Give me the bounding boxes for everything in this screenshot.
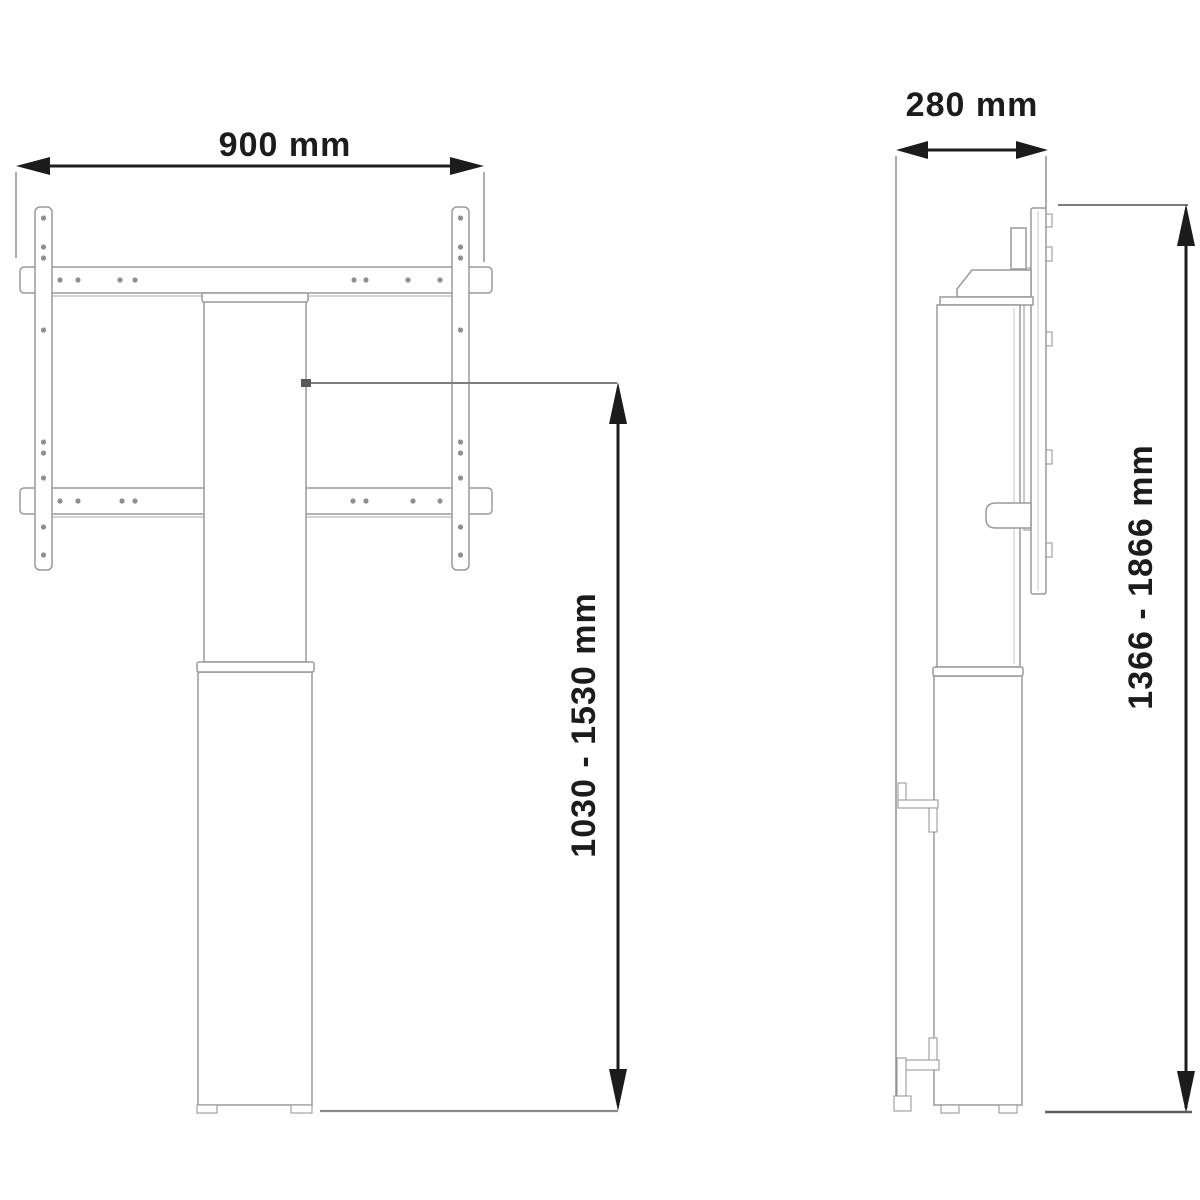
top-hook — [1011, 228, 1026, 269]
side-foot-front — [941, 1105, 959, 1113]
outer-column-front — [198, 672, 312, 1105]
side-foot-back — [999, 1105, 1017, 1113]
arrowhead-up-icon — [609, 382, 627, 424]
arrowhead-right-icon — [450, 157, 484, 175]
bottom-wall-foot — [894, 1096, 911, 1111]
arrowhead-up-icon — [1177, 204, 1195, 246]
side-height-label: 1366 - 1866 mm — [1122, 444, 1160, 709]
mid-hook — [986, 503, 1031, 528]
reference-tick — [301, 379, 311, 387]
arrowhead-left-icon — [16, 157, 50, 175]
technical-drawing-canvas: 900 mm — [0, 0, 1200, 1200]
side-wall-brackets — [894, 783, 939, 1111]
bottom-wall-plate — [897, 1058, 906, 1096]
front-width-dimension: 900 mm — [16, 126, 484, 262]
right-vesa-strip — [452, 207, 469, 570]
side-display-plate — [1024, 208, 1052, 594]
outer-column-side-lip — [933, 667, 1023, 676]
mid-wall-column-tab — [929, 808, 937, 832]
side-brackets — [940, 228, 1033, 305]
mid-wall-arm — [898, 800, 938, 808]
upper-bracket-flange — [940, 297, 1033, 305]
arrowhead-left-icon — [896, 141, 928, 159]
upper-bracket-arm — [957, 270, 1031, 297]
side-depth-label: 280 mm — [906, 86, 1039, 124]
front-width-label: 900 mm — [219, 126, 352, 164]
front-foot-right — [291, 1105, 312, 1113]
inner-column-top-cap — [202, 293, 308, 302]
outer-column-lip — [197, 662, 314, 672]
side-view: 280 mm — [894, 86, 1195, 1113]
side-height-dimension: 1366 - 1866 mm — [1045, 204, 1195, 1113]
inner-column-front — [204, 299, 306, 662]
front-view: 900 mm — [16, 126, 627, 1113]
arrowhead-right-icon — [1016, 141, 1048, 159]
bottom-wall-column-tab — [929, 1038, 937, 1062]
arrowhead-down-icon — [609, 1069, 627, 1111]
outer-column-side — [934, 676, 1022, 1105]
stand-dimension-diagram: 900 mm — [0, 0, 1200, 1200]
arrowhead-down-icon — [1177, 1071, 1195, 1113]
front-foot-left — [197, 1105, 217, 1113]
front-height-label: 1030 - 1530 mm — [565, 592, 603, 857]
top-mount-rail — [20, 267, 492, 293]
front-column — [197, 293, 314, 1113]
left-vesa-strip — [35, 207, 52, 570]
side-column — [933, 305, 1031, 1113]
inner-column-side — [937, 305, 1020, 667]
